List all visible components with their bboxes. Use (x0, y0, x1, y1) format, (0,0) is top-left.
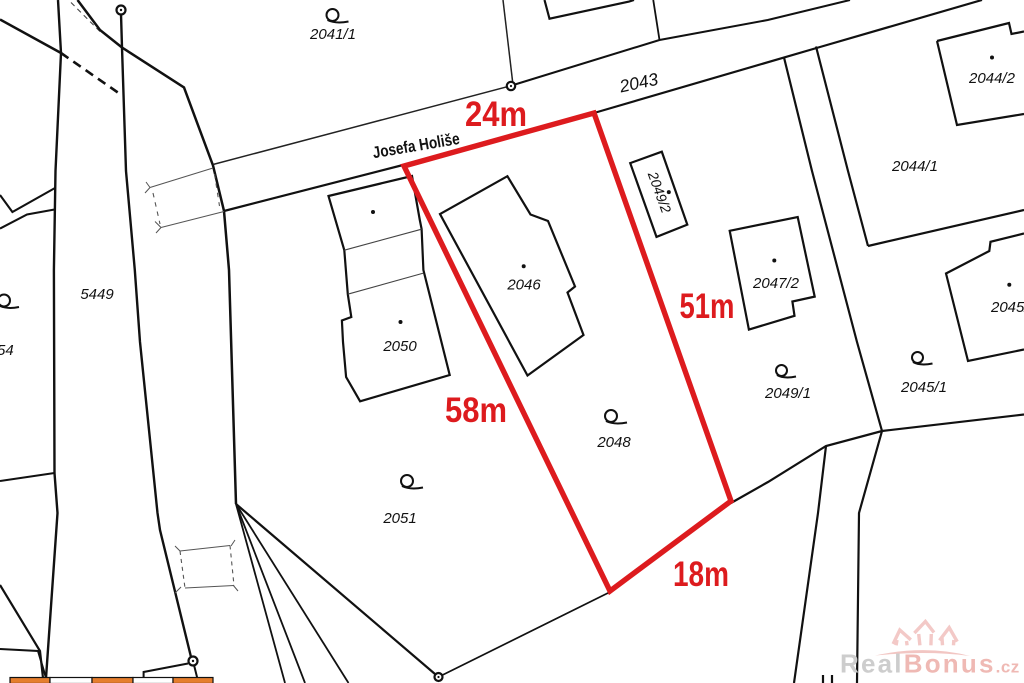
svg-text:2050: 2050 (382, 338, 417, 355)
svg-text:18m: 18m (673, 555, 729, 594)
svg-text:2048: 2048 (596, 434, 631, 451)
svg-text:2051: 2051 (382, 510, 416, 527)
svg-text:2045/: 2045/ (990, 299, 1024, 316)
svg-text:2044/1: 2044/1 (891, 158, 938, 175)
svg-text:58m: 58m (445, 391, 507, 430)
svg-text:51m: 51m (680, 287, 735, 326)
svg-text:2044/2: 2044/2 (968, 70, 1016, 87)
svg-text:2045/1: 2045/1 (900, 379, 947, 396)
svg-text:2046: 2046 (506, 277, 541, 294)
svg-text:5449: 5449 (80, 286, 114, 303)
svg-text:2047/2: 2047/2 (752, 275, 800, 292)
svg-text:RealBonus.cz: RealBonus.cz (840, 649, 1020, 679)
svg-text:54: 54 (0, 342, 14, 359)
svg-text:2049/1: 2049/1 (764, 385, 811, 402)
svg-text:24m: 24m (465, 95, 527, 134)
svg-text:2041/1: 2041/1 (309, 26, 356, 43)
